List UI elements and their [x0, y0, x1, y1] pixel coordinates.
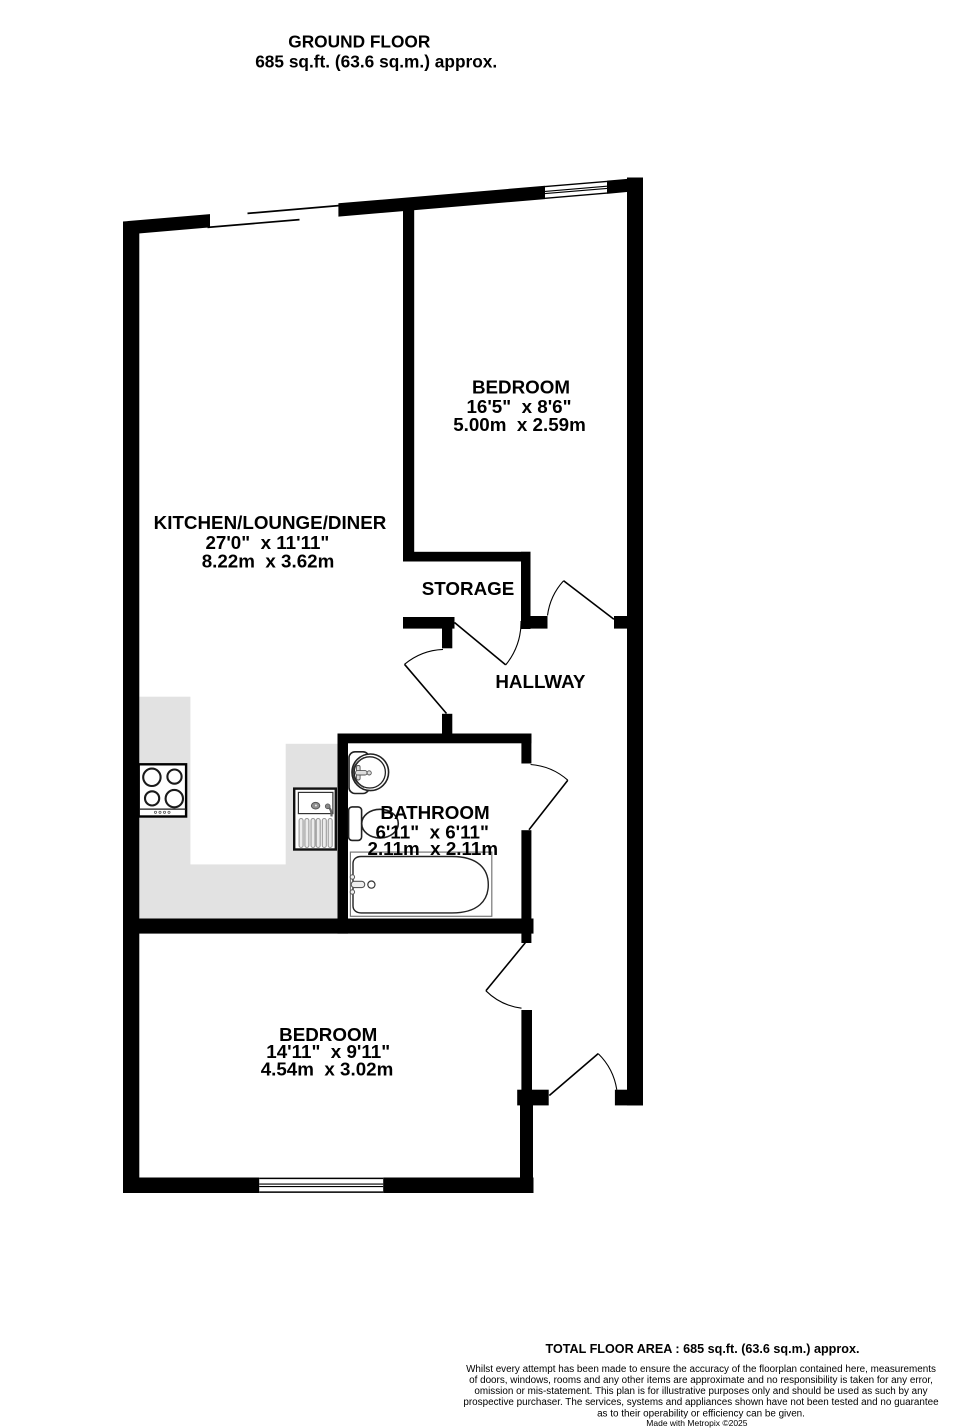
svg-text:omission or mis-statement. Thi: omission or mis-statement. This plan is …: [474, 1386, 927, 1397]
svg-text:5.00m x 2.59m: 5.00m x 2.59m: [453, 414, 586, 435]
svg-text:4.54m x 3.02m: 4.54m x 3.02m: [261, 1059, 394, 1080]
svg-text:Made with Metropix ©2025: Made with Metropix ©2025: [646, 1418, 748, 1428]
svg-text:of doors, windows, rooms and a: of doors, windows, rooms and any other i…: [469, 1375, 933, 1386]
svg-text:HALLWAY: HALLWAY: [495, 671, 586, 692]
svg-text:GROUND FLOOR: GROUND FLOOR: [288, 32, 431, 52]
svg-text:Whilst every attempt has been: Whilst every attempt has been made to en…: [466, 1364, 936, 1375]
svg-text:STORAGE: STORAGE: [422, 578, 515, 599]
svg-text:685 sq.ft. (63.6 sq.m.) approx: 685 sq.ft. (63.6 sq.m.) approx.: [255, 51, 497, 71]
svg-text:BEDROOM: BEDROOM: [472, 377, 570, 398]
svg-text:8.22m x 3.62m: 8.22m x 3.62m: [202, 551, 335, 572]
svg-text:KITCHEN/LOUNGE/DINER: KITCHEN/LOUNGE/DINER: [154, 512, 387, 533]
svg-text:BATHROOM: BATHROOM: [380, 802, 489, 823]
svg-text:TOTAL FLOOR AREA : 685 sq.ft.: TOTAL FLOOR AREA : 685 sq.ft. (63.6 sq.m…: [546, 1342, 860, 1356]
svg-text:prospective purchaser. The ser: prospective purchaser. The services, sys…: [463, 1397, 939, 1408]
svg-text:2.11m x 2.11m: 2.11m x 2.11m: [368, 838, 499, 859]
